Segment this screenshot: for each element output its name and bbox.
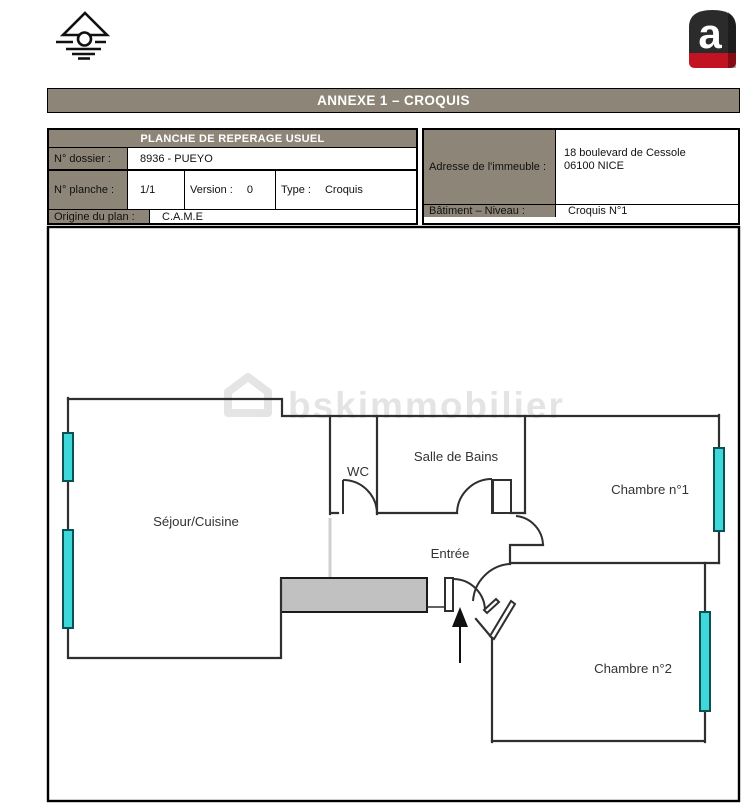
- label-sdb: Salle de Bains: [414, 449, 499, 464]
- label-ch1: Chambre n°1: [611, 482, 689, 497]
- label-entree: Entrée: [431, 546, 470, 561]
- window-sejour-lower: [63, 530, 73, 628]
- sdb-pier: [493, 480, 511, 513]
- floor-plan: bskimmobilier: [0, 0, 742, 804]
- entry-post: [445, 578, 453, 611]
- label-ch2: Chambre n°2: [594, 661, 672, 676]
- label-sejour: Séjour/Cuisine: [153, 514, 239, 529]
- window-ch2: [700, 612, 710, 711]
- closet-block: [281, 578, 427, 612]
- label-wc: WC: [347, 464, 369, 479]
- window-ch1: [714, 448, 724, 531]
- window-sejour-upper: [63, 433, 73, 481]
